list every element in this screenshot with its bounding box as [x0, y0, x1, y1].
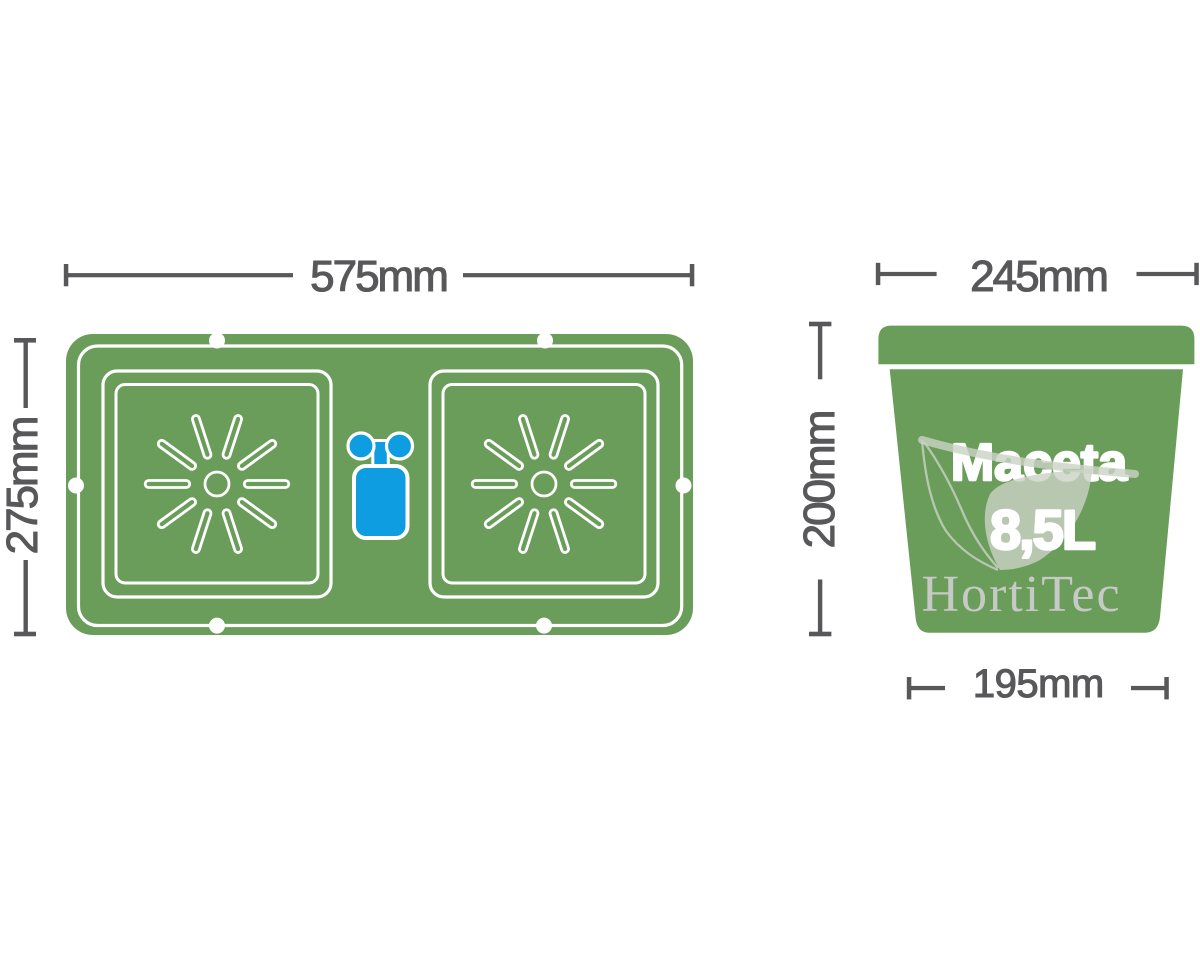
svg-text:8,5L: 8,5L [990, 498, 1095, 561]
svg-text:575mm: 575mm [310, 252, 447, 301]
svg-text:275mm: 275mm [0, 418, 47, 555]
svg-text:195mm: 195mm [973, 662, 1104, 706]
svg-text:HortiTec: HortiTec [921, 566, 1121, 623]
svg-text:245mm: 245mm [970, 252, 1107, 301]
svg-text:200mm: 200mm [795, 412, 844, 549]
